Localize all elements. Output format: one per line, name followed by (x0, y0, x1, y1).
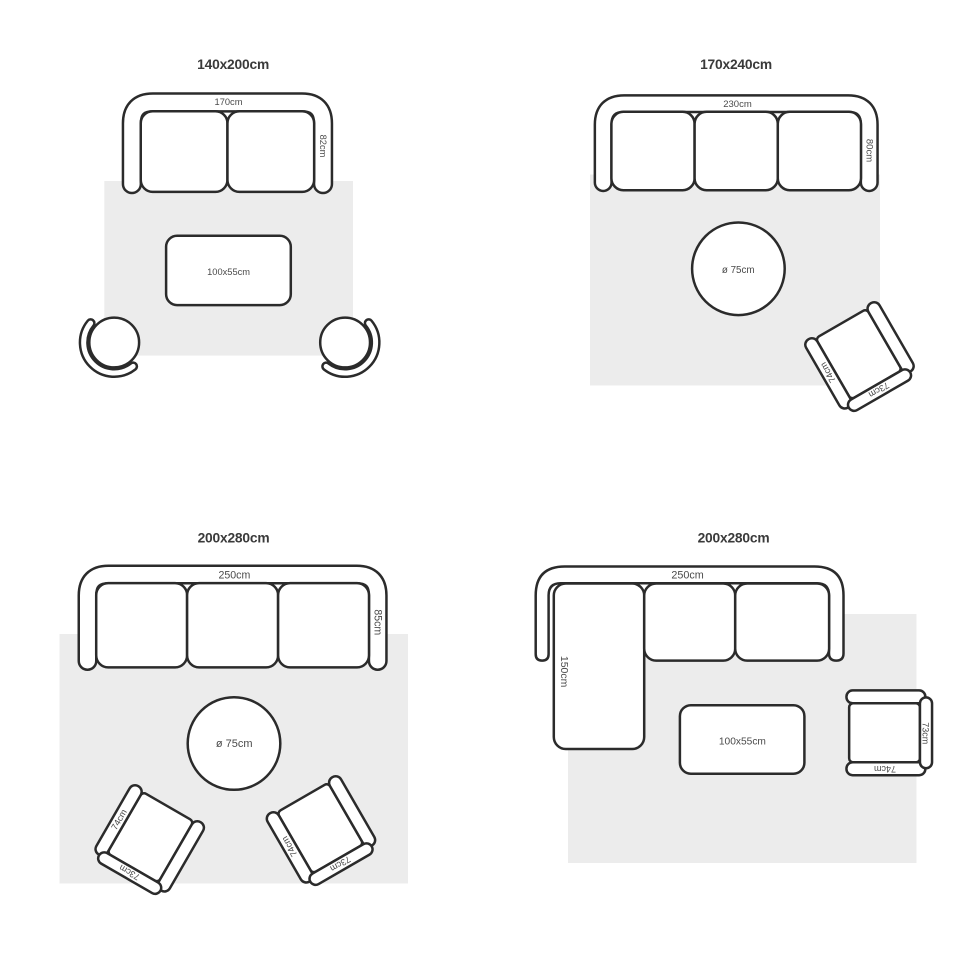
svg-text:100x55cm: 100x55cm (719, 736, 766, 747)
svg-text:200x280cm: 200x280cm (698, 530, 770, 545)
svg-text:140x200cm: 140x200cm (197, 57, 269, 72)
svg-text:250cm: 250cm (671, 569, 703, 581)
svg-text:85cm: 85cm (372, 609, 384, 635)
svg-text:80cm: 80cm (864, 139, 875, 162)
svg-text:ø 75cm: ø 75cm (722, 265, 755, 276)
svg-text:230cm: 230cm (723, 99, 752, 110)
svg-text:250cm: 250cm (219, 569, 251, 581)
svg-text:200x280cm: 200x280cm (198, 530, 270, 545)
svg-text:82cm: 82cm (318, 135, 328, 158)
svg-text:100x55cm: 100x55cm (207, 267, 250, 277)
svg-text:170cm: 170cm (215, 97, 243, 107)
svg-text:150cm: 150cm (558, 656, 570, 688)
svg-text:ø 75cm: ø 75cm (216, 738, 253, 750)
svg-text:170x240cm: 170x240cm (700, 57, 772, 72)
